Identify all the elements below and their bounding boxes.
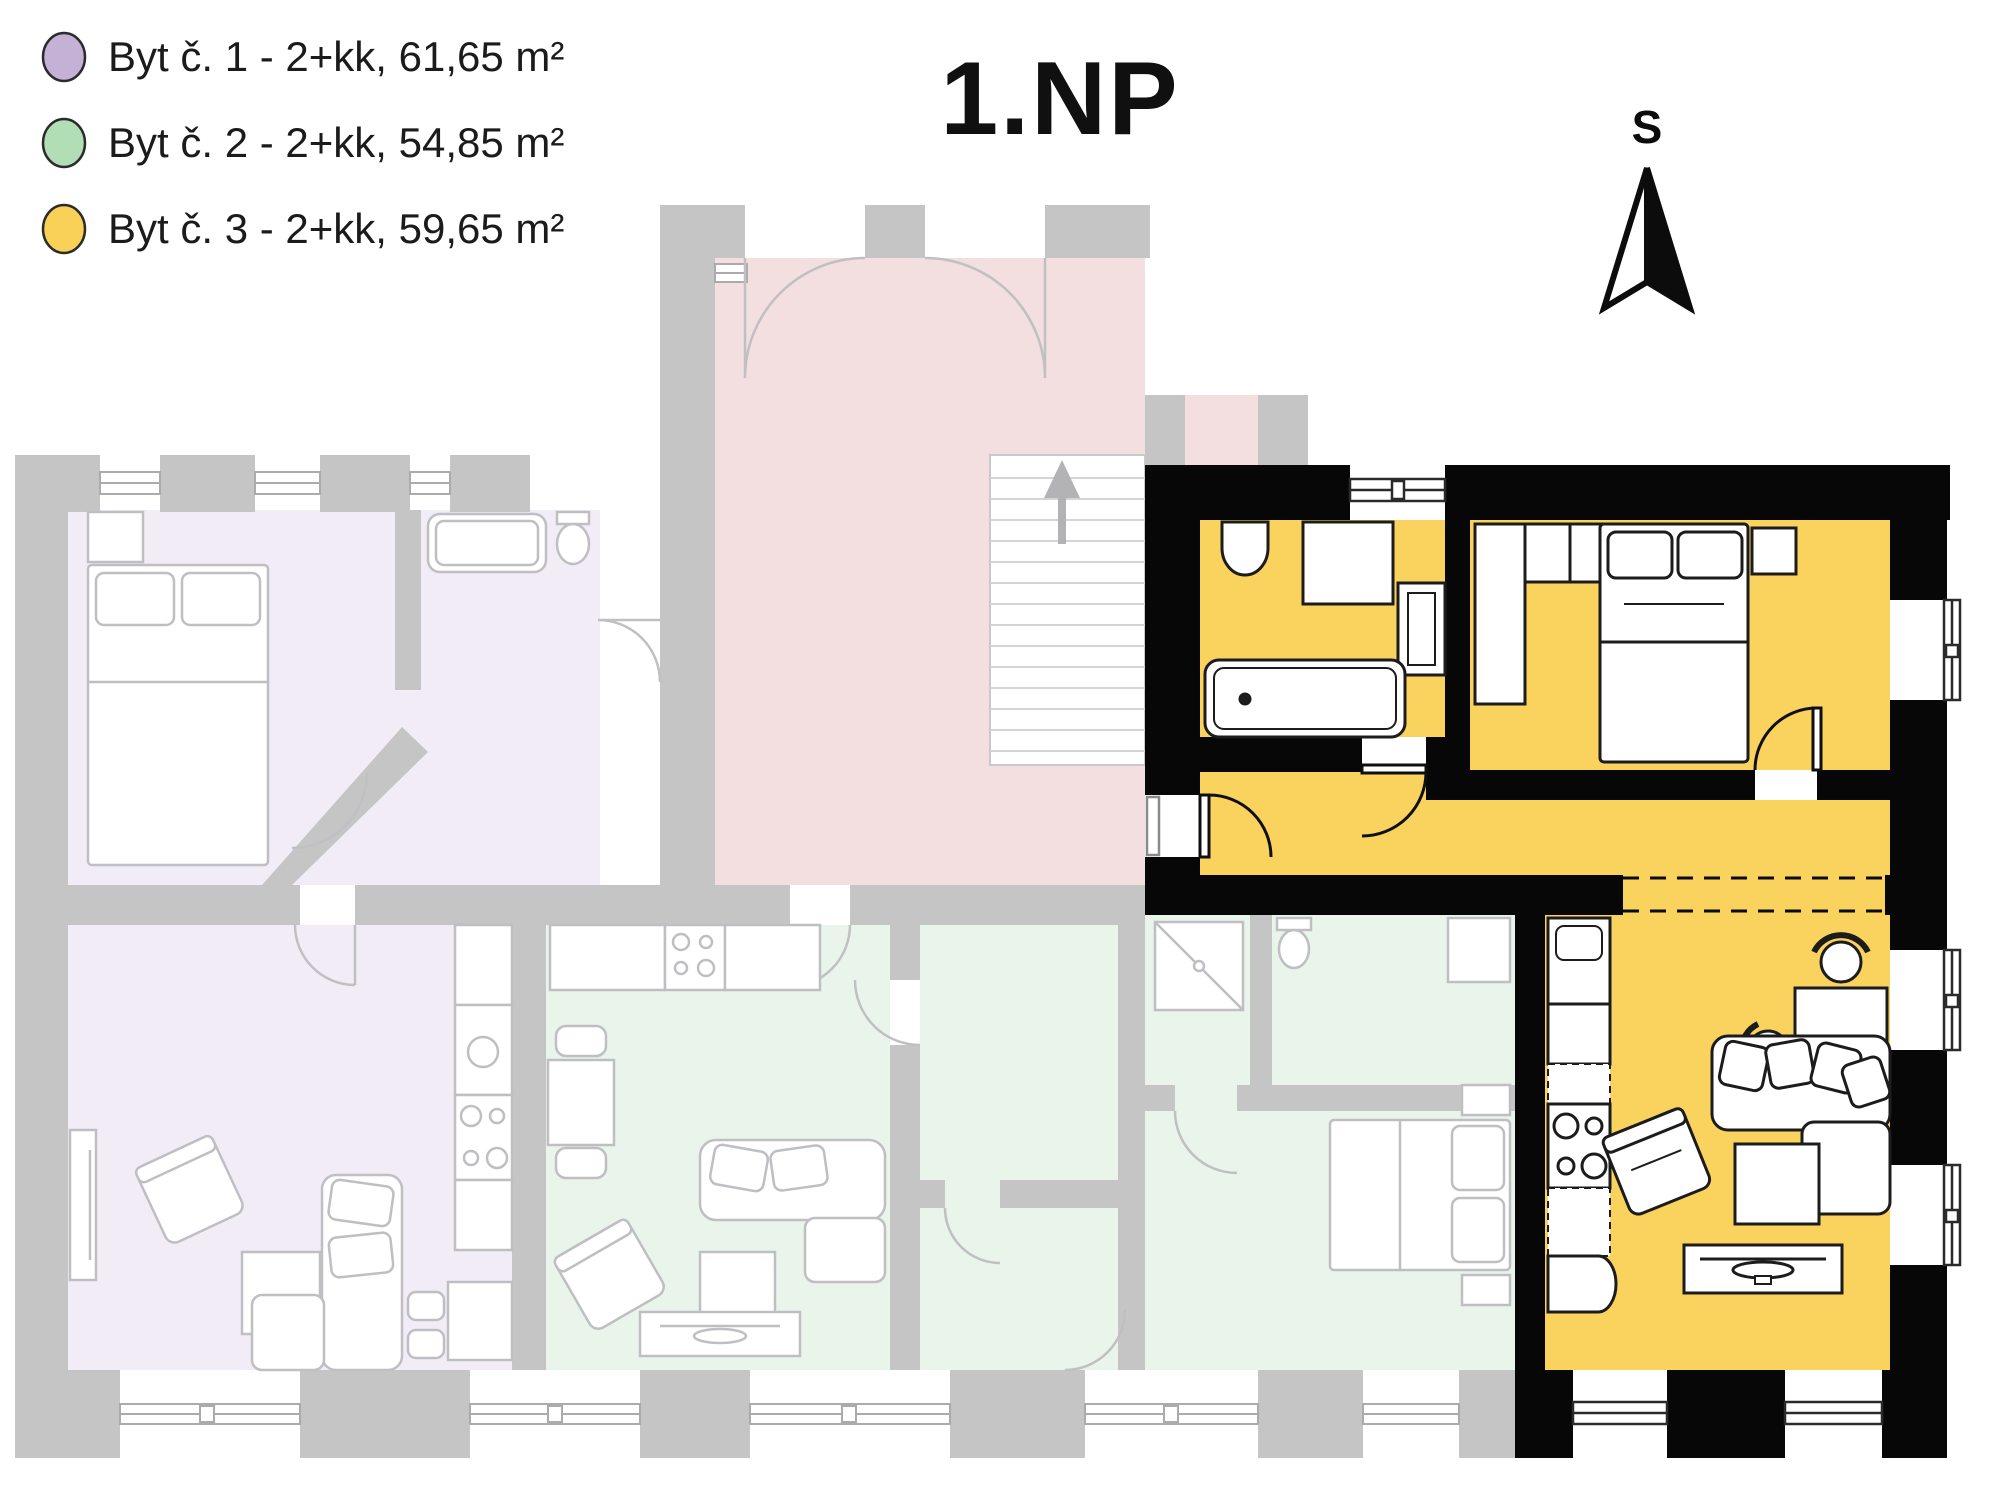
washing-machine (1303, 522, 1393, 604)
floor-plan-page: Byt č. 1 - 2+kk, 61,65 m² Byt č. 2 - 2+k… (0, 0, 2000, 1500)
staircase (990, 455, 1145, 765)
kitchen-counter (1548, 918, 1616, 1312)
legend-label-byt-2: Byt č. 2 - 2+kk, 54,85 m² (108, 119, 564, 167)
legend-color-swatch-2 (40, 116, 88, 170)
bathtub (1205, 660, 1405, 737)
tv-stand (1684, 1245, 1842, 1293)
legend-label-byt-1: Byt č. 1 - 2+kk, 61,65 m² (108, 33, 564, 81)
legend-item-byt-2: Byt č. 2 - 2+kk, 54,85 m² (40, 116, 564, 170)
north-arrow-icon (1597, 160, 1697, 320)
legend-label-byt-3: Byt č. 3 - 2+kk, 59,65 m² (108, 205, 564, 253)
compass: S (1592, 100, 1702, 320)
byt-3-color-circle (43, 205, 85, 253)
window-living-east-2 (1944, 1165, 1960, 1265)
byt-2-color-circle (43, 119, 85, 167)
legend-item-byt-1: Byt č. 1 - 2+kk, 61,65 m² (40, 30, 564, 84)
legend-color-swatch-1 (40, 30, 88, 84)
double-bed (1600, 524, 1748, 762)
nightstand (1752, 528, 1796, 574)
legend-color-swatch-3 (40, 202, 88, 256)
wardrobe (1475, 524, 1525, 704)
legend: Byt č. 1 - 2+kk, 61,65 m² Byt č. 2 - 2+k… (40, 30, 564, 256)
page-title: 1.NP (880, 40, 1240, 159)
legend-item-byt-3: Byt č. 3 - 2+kk, 59,65 m² (40, 202, 564, 256)
coffee-table (1735, 1144, 1819, 1224)
compass-letter: S (1592, 100, 1702, 154)
window-living-east-1 (1944, 950, 1960, 1050)
byt-1-color-circle (43, 33, 85, 81)
toilet (1222, 522, 1268, 575)
window-bedroom-east (1944, 600, 1960, 700)
